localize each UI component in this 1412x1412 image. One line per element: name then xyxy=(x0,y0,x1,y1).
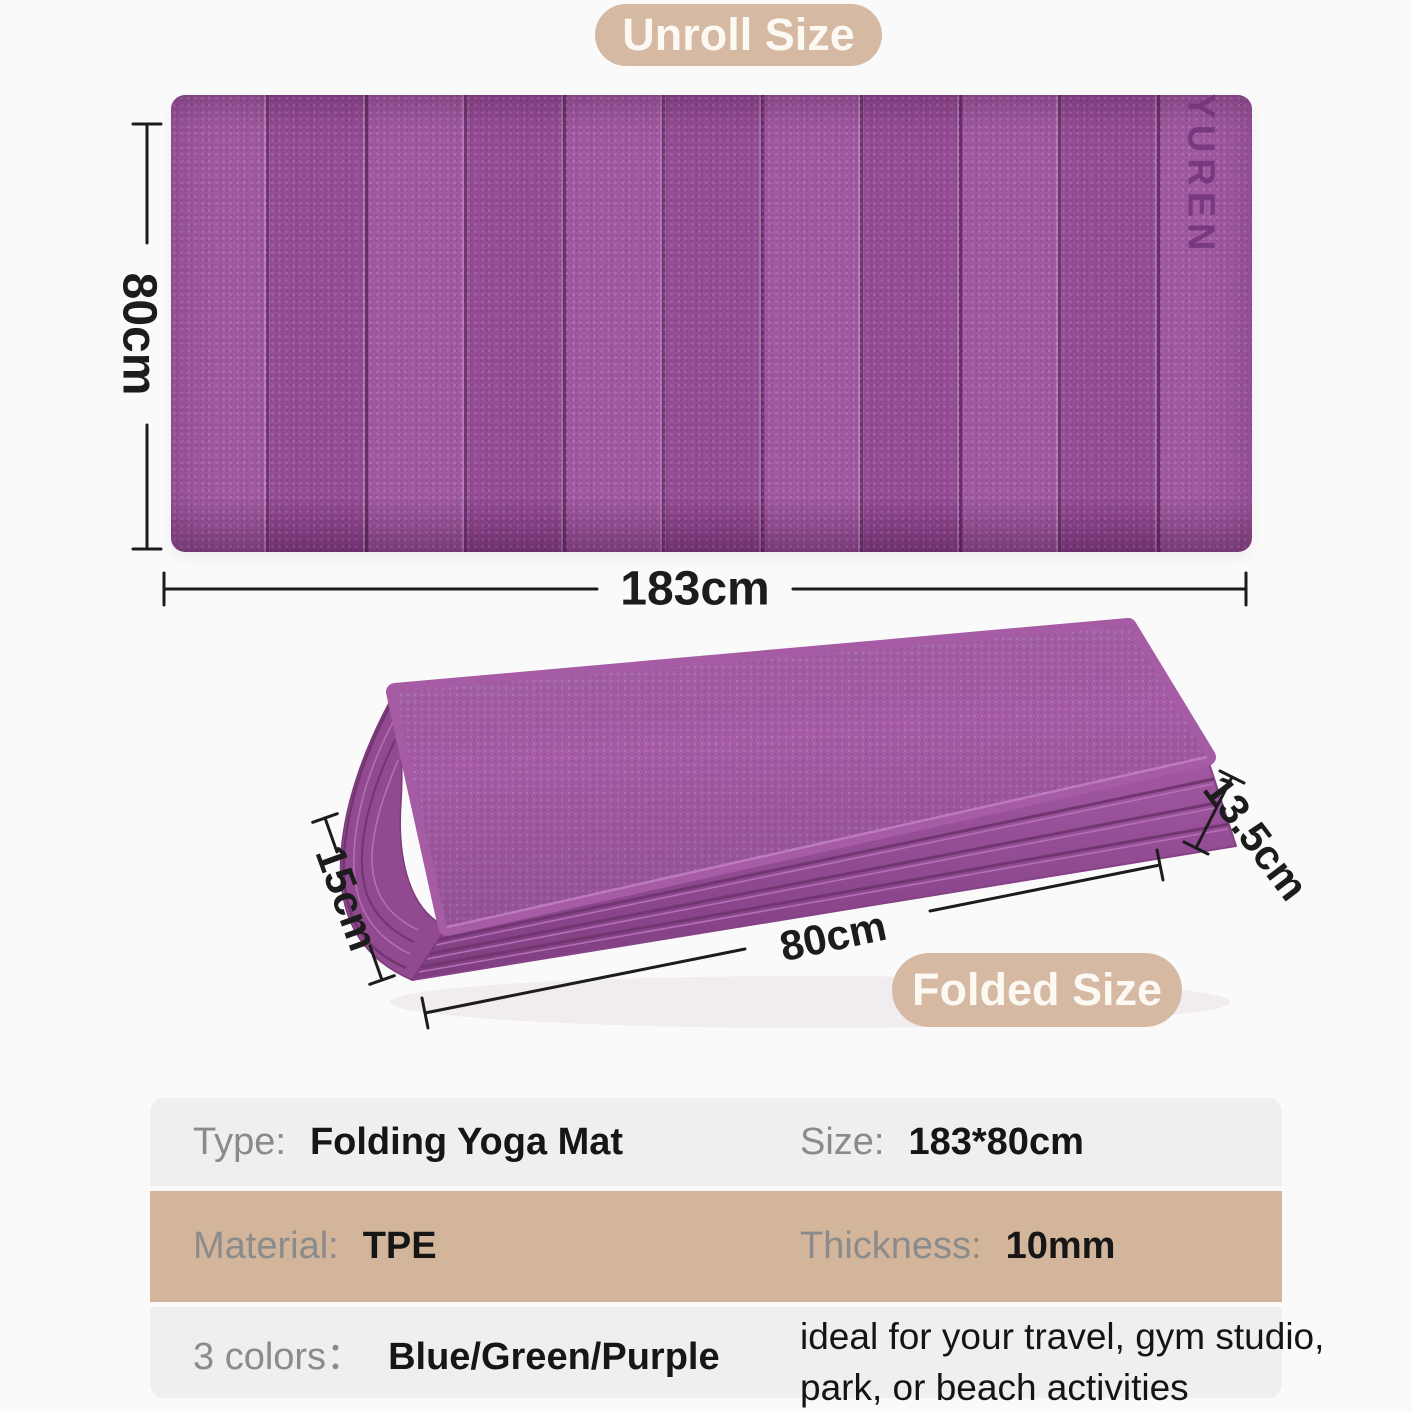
spec-value-colors: Blue/Green/Purple xyxy=(388,1336,720,1379)
spec-label-material: Material: xyxy=(193,1225,339,1268)
spec-cell-colors: 3 colors： Blue/Green/Purple xyxy=(150,1325,720,1380)
spec-cell-size: Size: 183*80cm xyxy=(800,1121,1084,1164)
spec-label-type: Type: xyxy=(193,1121,286,1164)
folded-mat-layer-ridges xyxy=(419,779,1229,972)
spec-row-colors-usage: 3 colors： Blue/Green/Purple ideal for yo… xyxy=(150,1307,1282,1398)
spec-value-thickness: 10mm xyxy=(1006,1225,1116,1268)
spec-value-material: TPE xyxy=(363,1225,437,1268)
spec-cell-material: Material: TPE xyxy=(150,1225,437,1268)
spec-row-material-thickness: Material: TPE Thickness: 10mm xyxy=(150,1191,1282,1302)
dim-folded-width: 15cm xyxy=(307,814,395,985)
product-infographic: Unroll Size YUREN xyxy=(0,0,1412,1412)
spec-label-thickness: Thickness: xyxy=(800,1225,982,1268)
unrolled-mat-photo: YUREN xyxy=(171,95,1252,552)
unroll-size-label: Unroll Size xyxy=(622,9,855,61)
unroll-size-badge: Unroll Size xyxy=(595,4,882,66)
folded-size-label: Folded Size xyxy=(912,964,1162,1016)
spec-cell-type: Type: Folding Yoga Mat xyxy=(150,1121,623,1164)
brand-logo: YUREN xyxy=(1179,93,1222,256)
spec-value-size: 183*80cm xyxy=(908,1121,1083,1164)
folded-size-badge: Folded Size xyxy=(892,953,1182,1027)
usage-note: ideal for your travel, gym studio, park,… xyxy=(800,1311,1324,1412)
folded-mat-left-cap xyxy=(341,692,447,980)
unrolled-height-label: 80cm xyxy=(113,273,166,396)
usage-note-line2: park, or beach activities xyxy=(800,1362,1324,1412)
spec-label-size: Size: xyxy=(800,1121,884,1164)
spec-cell-thickness: Thickness: 10mm xyxy=(800,1225,1115,1268)
dim-folded-thickness: 13.5cm xyxy=(1184,767,1318,909)
usage-note-line1: ideal for your travel, gym studio, xyxy=(800,1311,1324,1362)
folded-length-label: 80cm xyxy=(776,902,891,970)
spec-label-colors: 3 colors： xyxy=(193,1325,364,1380)
folded-mat-shading xyxy=(395,627,1207,927)
folded-mat-top-face xyxy=(395,627,1207,927)
dim-unrolled-width: 183cm xyxy=(164,563,1246,616)
folded-width-label: 15cm xyxy=(307,839,388,956)
dim-unrolled-height: 80cm xyxy=(113,124,166,549)
unrolled-width-label: 183cm xyxy=(620,563,769,616)
folded-mat-cap-ridges xyxy=(344,704,418,968)
folded-mat-front-edge-highlight xyxy=(447,757,1207,927)
spec-value-type: Folding Yoga Mat xyxy=(310,1121,623,1164)
folded-thickness-label: 13.5cm xyxy=(1194,767,1317,909)
folded-mat-side xyxy=(412,757,1236,980)
folded-mat-texture xyxy=(395,627,1207,927)
spec-row-type-size: Type: Folding Yoga Mat Size: 183*80cm xyxy=(150,1098,1282,1186)
